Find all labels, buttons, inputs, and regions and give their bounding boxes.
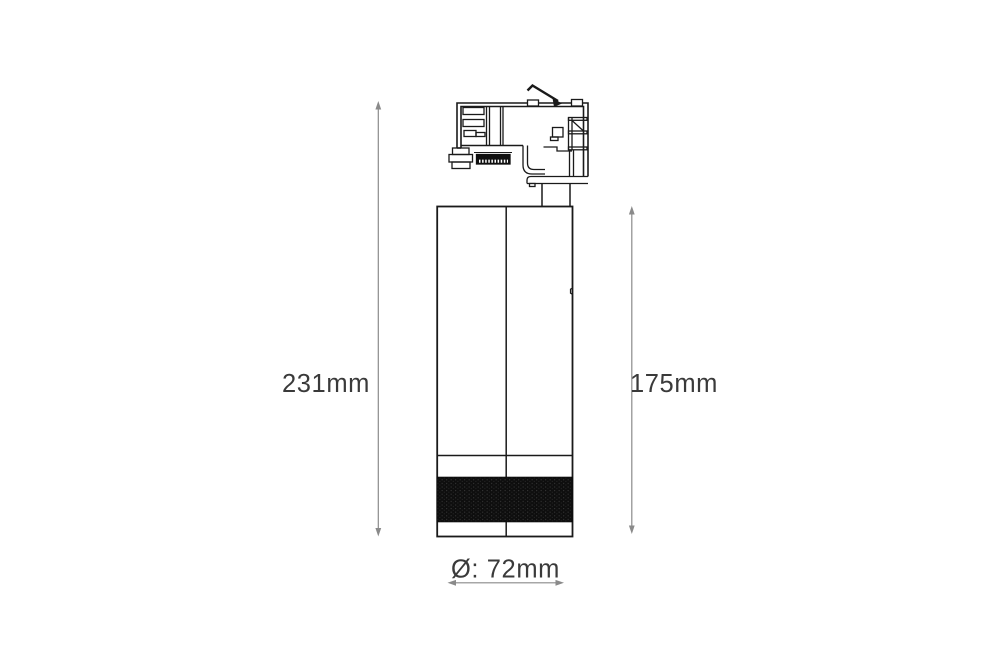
adapter-contact-slots [463, 108, 485, 137]
adapter-top-tab-left [528, 100, 539, 106]
knurled-band [437, 477, 572, 522]
arrow-down-icon [375, 528, 381, 537]
arrow-up-icon [629, 206, 635, 215]
drawing-canvas: 231mm 175mm Ø: 72mm [0, 0, 1000, 667]
dimension-label-diameter: Ø: 72mm [451, 556, 560, 584]
arrow-down-icon [629, 526, 635, 535]
technical-drawing: 231mm 175mm Ø: 72mm [0, 0, 1000, 667]
dimension-overall-height: 231mm [282, 101, 381, 537]
adapter-top-tab-right [572, 100, 583, 107]
dimension-body-height: 175mm [629, 206, 718, 534]
dimension-label-overall-height: 231mm [282, 370, 370, 398]
adapter-stem [542, 184, 570, 207]
dimension-label-body-height: 175mm [630, 370, 718, 398]
arrow-up-icon [375, 101, 381, 110]
adapter-partitions [487, 107, 504, 146]
terminal-strip [474, 153, 512, 165]
adapter-clamp-block [449, 148, 473, 169]
adapter-screw-detail [544, 128, 573, 152]
track-adapter [449, 86, 588, 207]
adapter-mount-base [523, 146, 588, 187]
fixture-body [437, 207, 572, 537]
dimension-diameter: Ø: 72mm [448, 556, 565, 586]
